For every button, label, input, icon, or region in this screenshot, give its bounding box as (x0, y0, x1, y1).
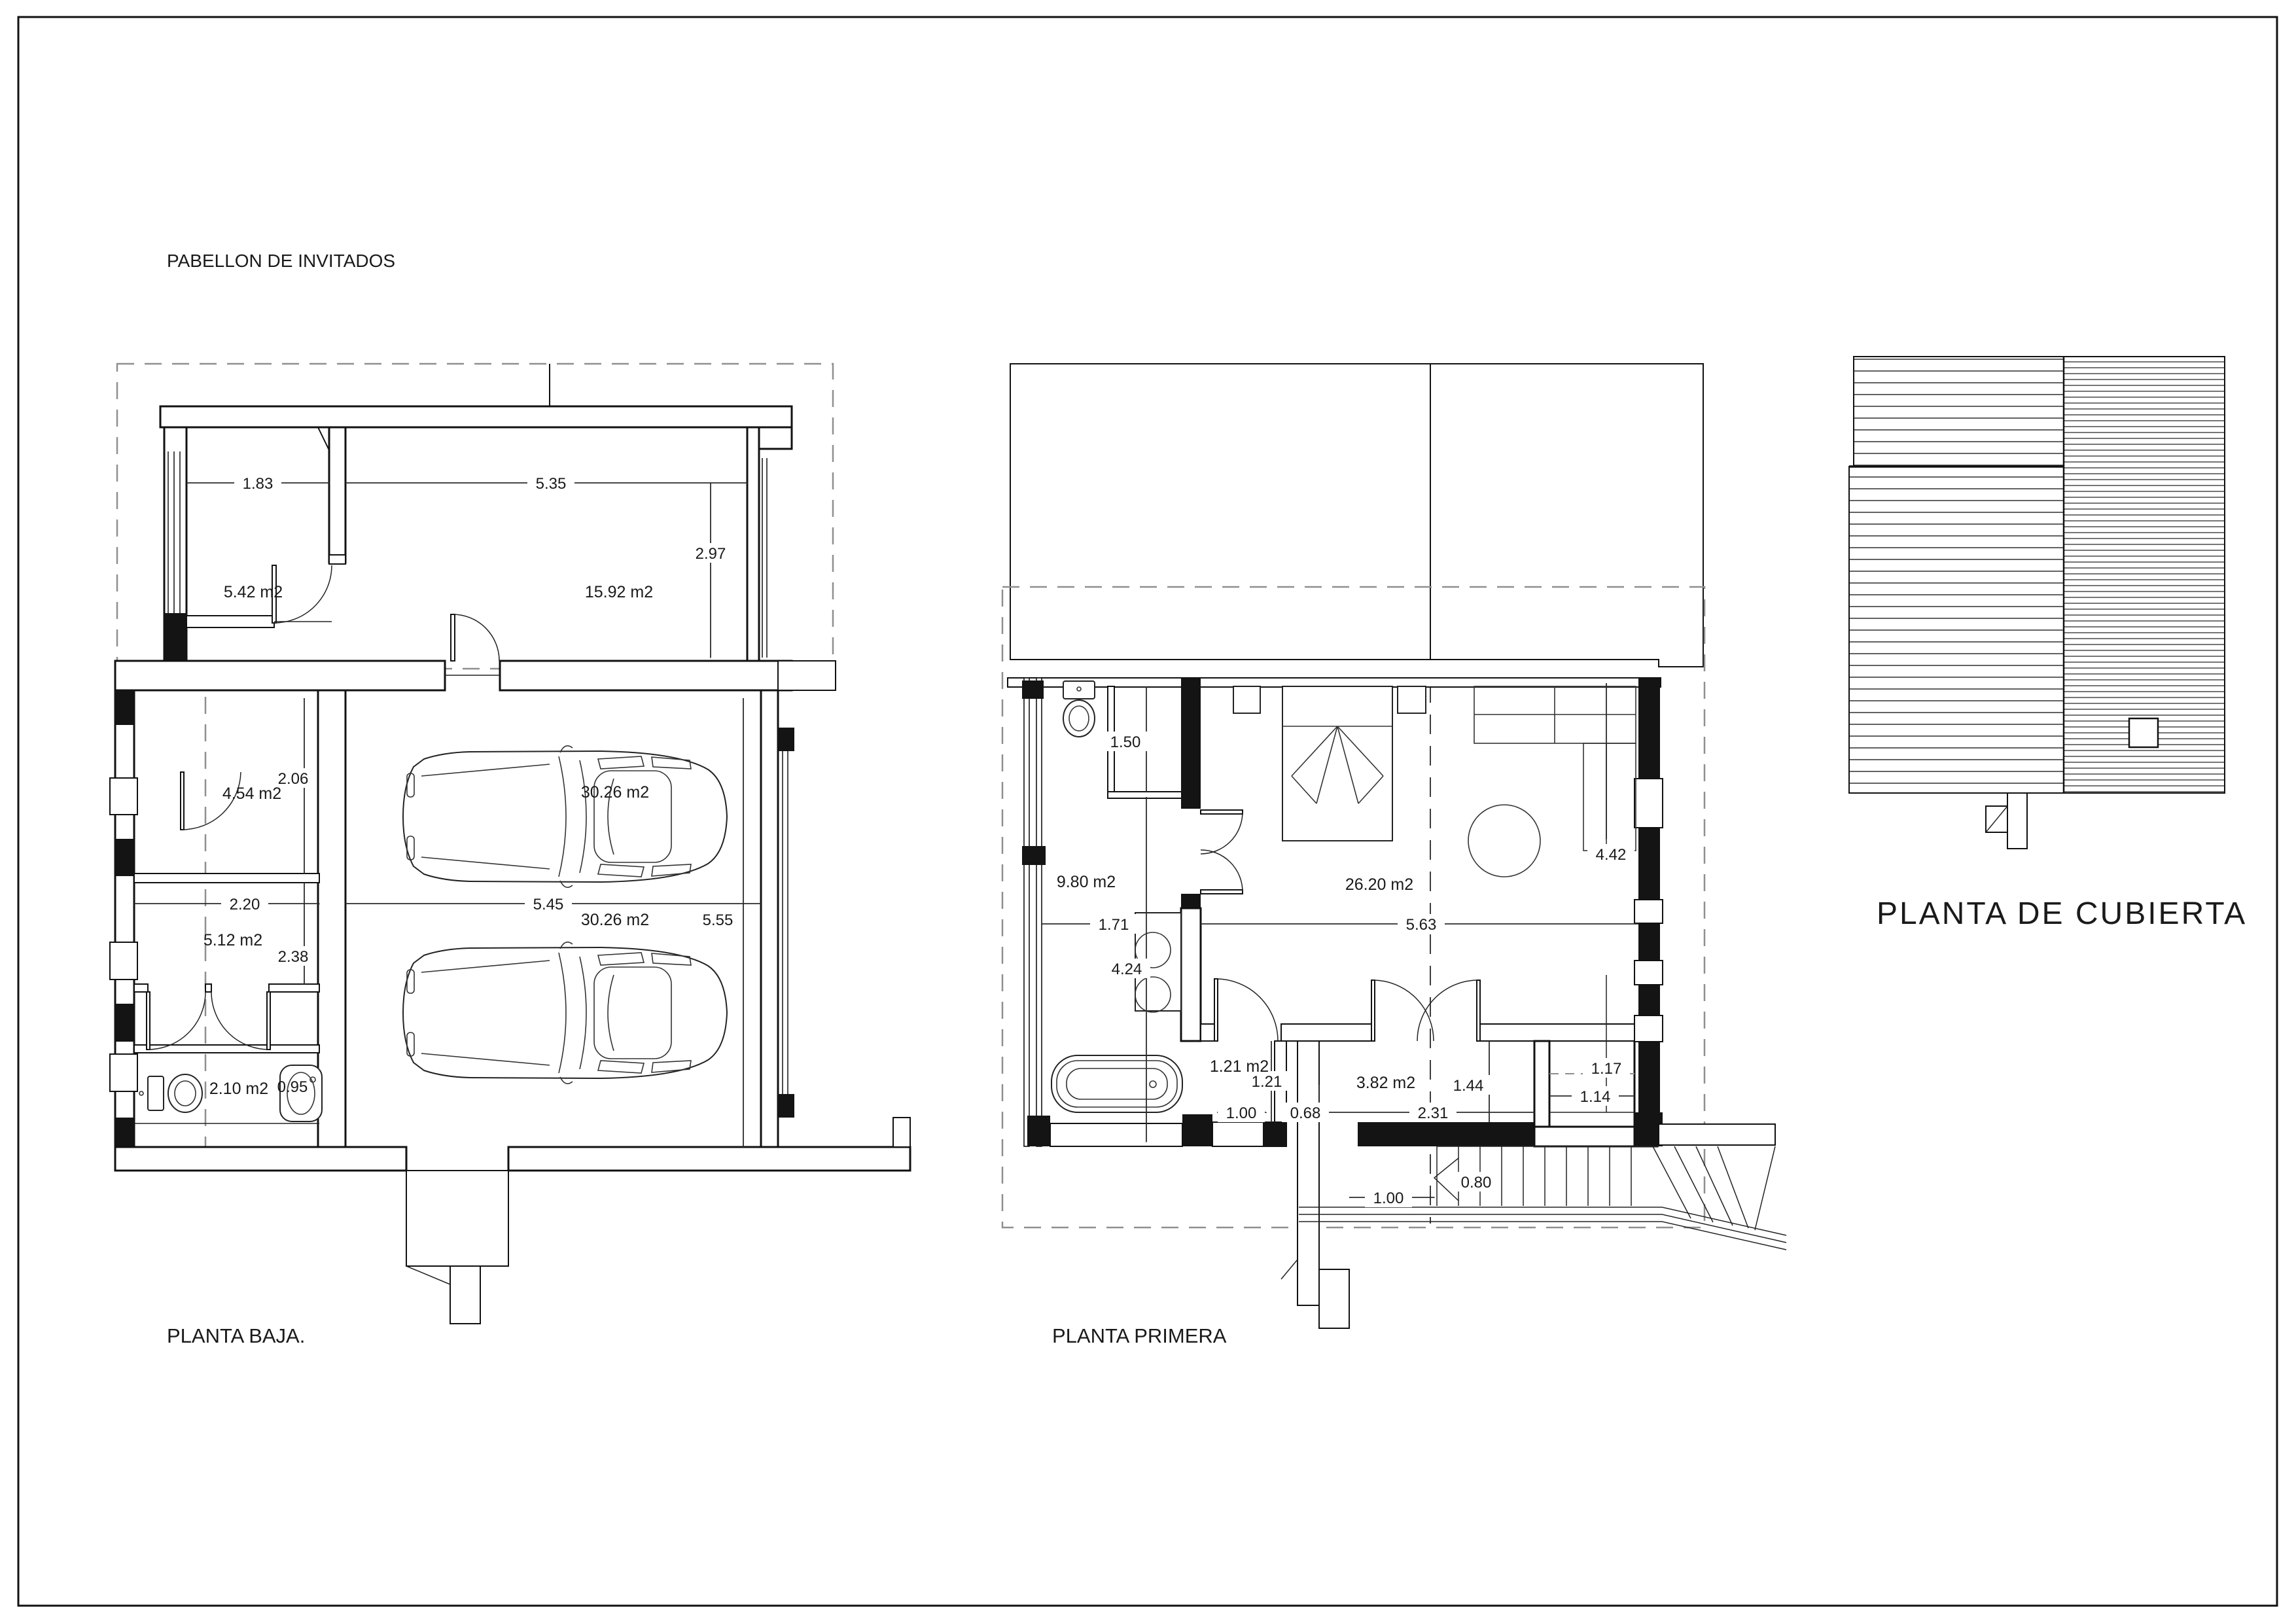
dim-label: 2.38 (278, 948, 309, 966)
dim-label: 5.45 (533, 896, 564, 913)
roof-bottom-protrusion (1986, 793, 2027, 849)
nightstand (1233, 686, 1260, 713)
room-area-label: 4.54 m2 (222, 785, 281, 803)
stair-landing (1659, 1124, 1775, 1145)
first-toilet (1063, 681, 1095, 737)
window (110, 942, 137, 980)
dim-label: 2.20 (230, 896, 260, 913)
dim-label: 1.44 (1453, 1077, 1484, 1095)
window (1634, 961, 1663, 985)
dim-label: 2.06 (278, 770, 309, 788)
window (1634, 779, 1663, 828)
dim-label: 1.14 (1580, 1088, 1611, 1106)
planta-primera-plan: 1.50 1.71 4.24 5.63 4.42 1.21 1.00 0.68 … (1002, 364, 1786, 1347)
first-sofa (1474, 686, 1636, 851)
dim-label: 2.97 (696, 545, 726, 563)
roof-hatch-upper-left (1854, 357, 2064, 467)
dim-label: 1.21 (1252, 1073, 1282, 1091)
plan-label-planta-primera: PLANTA PRIMERA (1052, 1324, 1227, 1347)
dim-label: 5.35 (536, 475, 567, 493)
roof-hatch-main-left (1849, 467, 2064, 793)
dim-label: 0.95 (277, 1078, 308, 1096)
room-area-label: 3.82 m2 (1356, 1074, 1415, 1092)
first-bed (1233, 686, 1426, 841)
first-duct-foot (1319, 1269, 1349, 1328)
room-area-label: 5.42 m2 (224, 583, 283, 601)
drawing-sheet: PABELLON DE INVITADOS (0, 0, 2296, 1624)
room-area-label: 15.92 m2 (585, 583, 653, 601)
dim-label: 1.50 (1110, 733, 1141, 751)
window (1634, 900, 1663, 923)
room-area-label: 1.21 m2 (1210, 1057, 1269, 1076)
dim-label: 5.55 (703, 911, 733, 929)
room-area-label: 9.80 m2 (1057, 873, 1116, 891)
dim-label: 4.24 (1112, 961, 1142, 978)
nightstand (1398, 686, 1426, 713)
room-area-label: 30.26 m2 (581, 911, 649, 929)
window (1634, 1015, 1663, 1042)
dim-label: 1.00 (1373, 1190, 1404, 1207)
first-bathtub (1051, 1055, 1182, 1112)
floor-plan-drawing: PABELLON DE INVITADOS (0, 0, 2296, 1624)
dim-label: 2.31 (1418, 1104, 1449, 1122)
roof-chimney (2129, 718, 2158, 747)
dim-label: 1.00 (1226, 1104, 1257, 1122)
first-round-table (1468, 805, 1540, 877)
planta-cubierta-plan: PLANTA DE CUBIERTA (1849, 357, 2247, 931)
car-top-view (403, 746, 727, 887)
dim-label: 1.17 (1591, 1060, 1622, 1078)
planta-baja-plan: 1.83 5.35 2.97 2.06 2.20 5.45 5.55 2.38 … (110, 364, 910, 1347)
dim-label: 5.63 (1406, 916, 1437, 934)
plan-label-planta-cubierta: PLANTA DE CUBIERTA (1877, 896, 2247, 931)
plan-label-planta-baja: PLANTA BAJA. (167, 1324, 305, 1347)
dim-label: 1.71 (1099, 916, 1129, 934)
car-top-view (403, 942, 727, 1084)
room-area-label: 26.20 m2 (1345, 875, 1413, 894)
sheet-title: PABELLON DE INVITADOS (167, 251, 395, 271)
room-area-label: 30.26 m2 (581, 783, 649, 802)
first-duct (1298, 1041, 1319, 1305)
dim-label: 0.68 (1290, 1104, 1321, 1122)
chimney-foot (450, 1266, 480, 1324)
room-area-label: 2.10 m2 (209, 1080, 268, 1098)
window (110, 1054, 137, 1091)
dim-label: 1.83 (243, 475, 274, 493)
room-area-label: 5.12 m2 (203, 931, 262, 949)
window (110, 778, 137, 815)
chimney-duct (406, 1171, 508, 1266)
dim-label: 0.80 (1461, 1174, 1492, 1192)
first-roof-outline (1010, 364, 1703, 667)
dim-label: 4.42 (1596, 846, 1627, 864)
ground-toilet (139, 1074, 202, 1112)
